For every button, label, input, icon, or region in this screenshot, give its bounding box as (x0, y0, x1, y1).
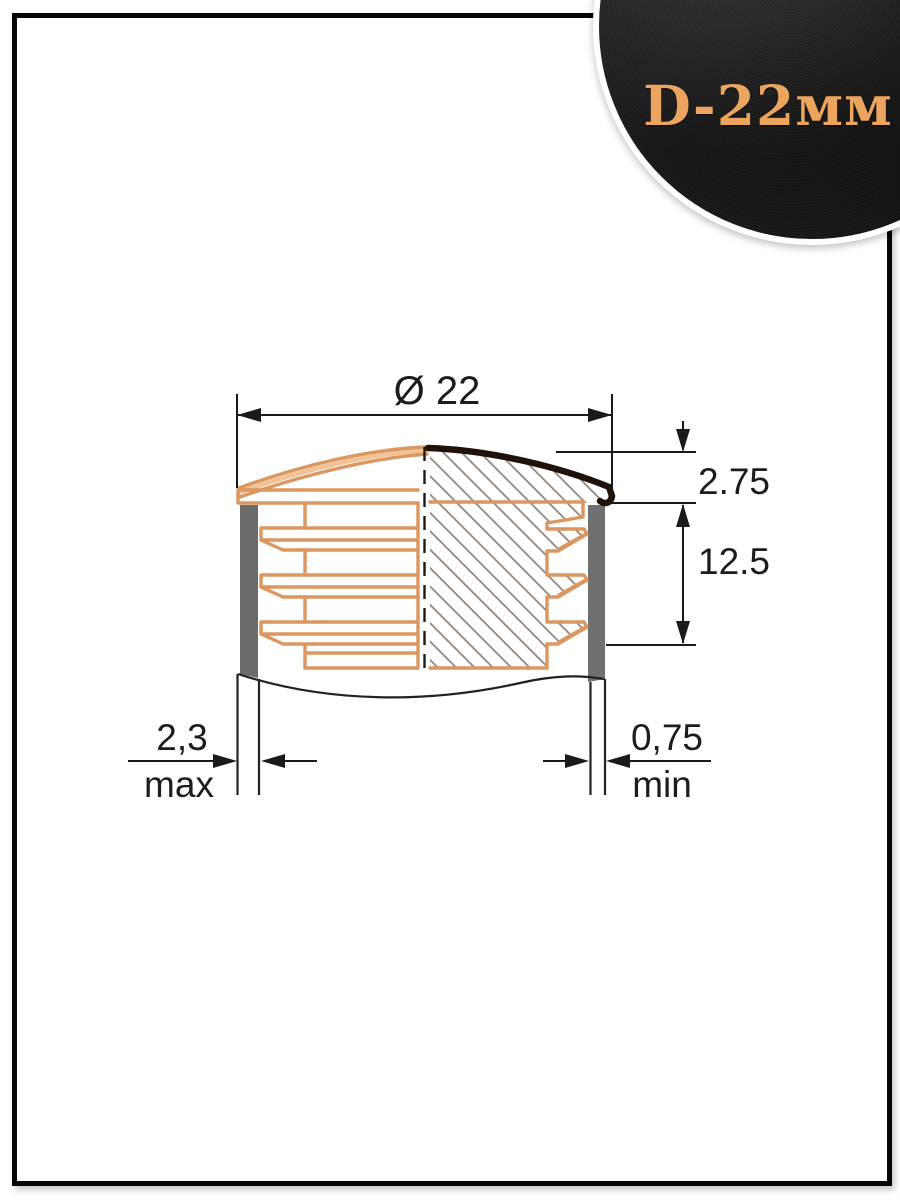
badge-label: D-22мм (630, 78, 900, 133)
tube-break-lines (238, 674, 606, 795)
wall-max-qualifier: max (144, 764, 214, 805)
diameter-label: Ø 22 (394, 369, 481, 413)
insert-depth-value: 12.5 (698, 541, 770, 582)
product-image: Ø 22 2.75 12.5 2,3 max (0, 0, 900, 1200)
section-hatch-area (430, 450, 611, 668)
wall-min-qualifier: min (632, 764, 692, 805)
fin-2 (261, 575, 418, 597)
fin-3 (261, 622, 418, 644)
fin-1 (261, 528, 418, 550)
dimension-wall-min: 0,75 min (543, 717, 711, 805)
dimension-insert-depth: 12.5 (606, 504, 770, 645)
plug-section-right (430, 450, 611, 668)
wall-max-value: 2,3 (156, 717, 207, 758)
wall-min-value: 0,75 (631, 717, 703, 758)
dimension-wall-max: 2,3 max (128, 717, 317, 805)
cap-height-value: 2.75 (698, 461, 770, 502)
plug-outline-left (238, 447, 427, 668)
